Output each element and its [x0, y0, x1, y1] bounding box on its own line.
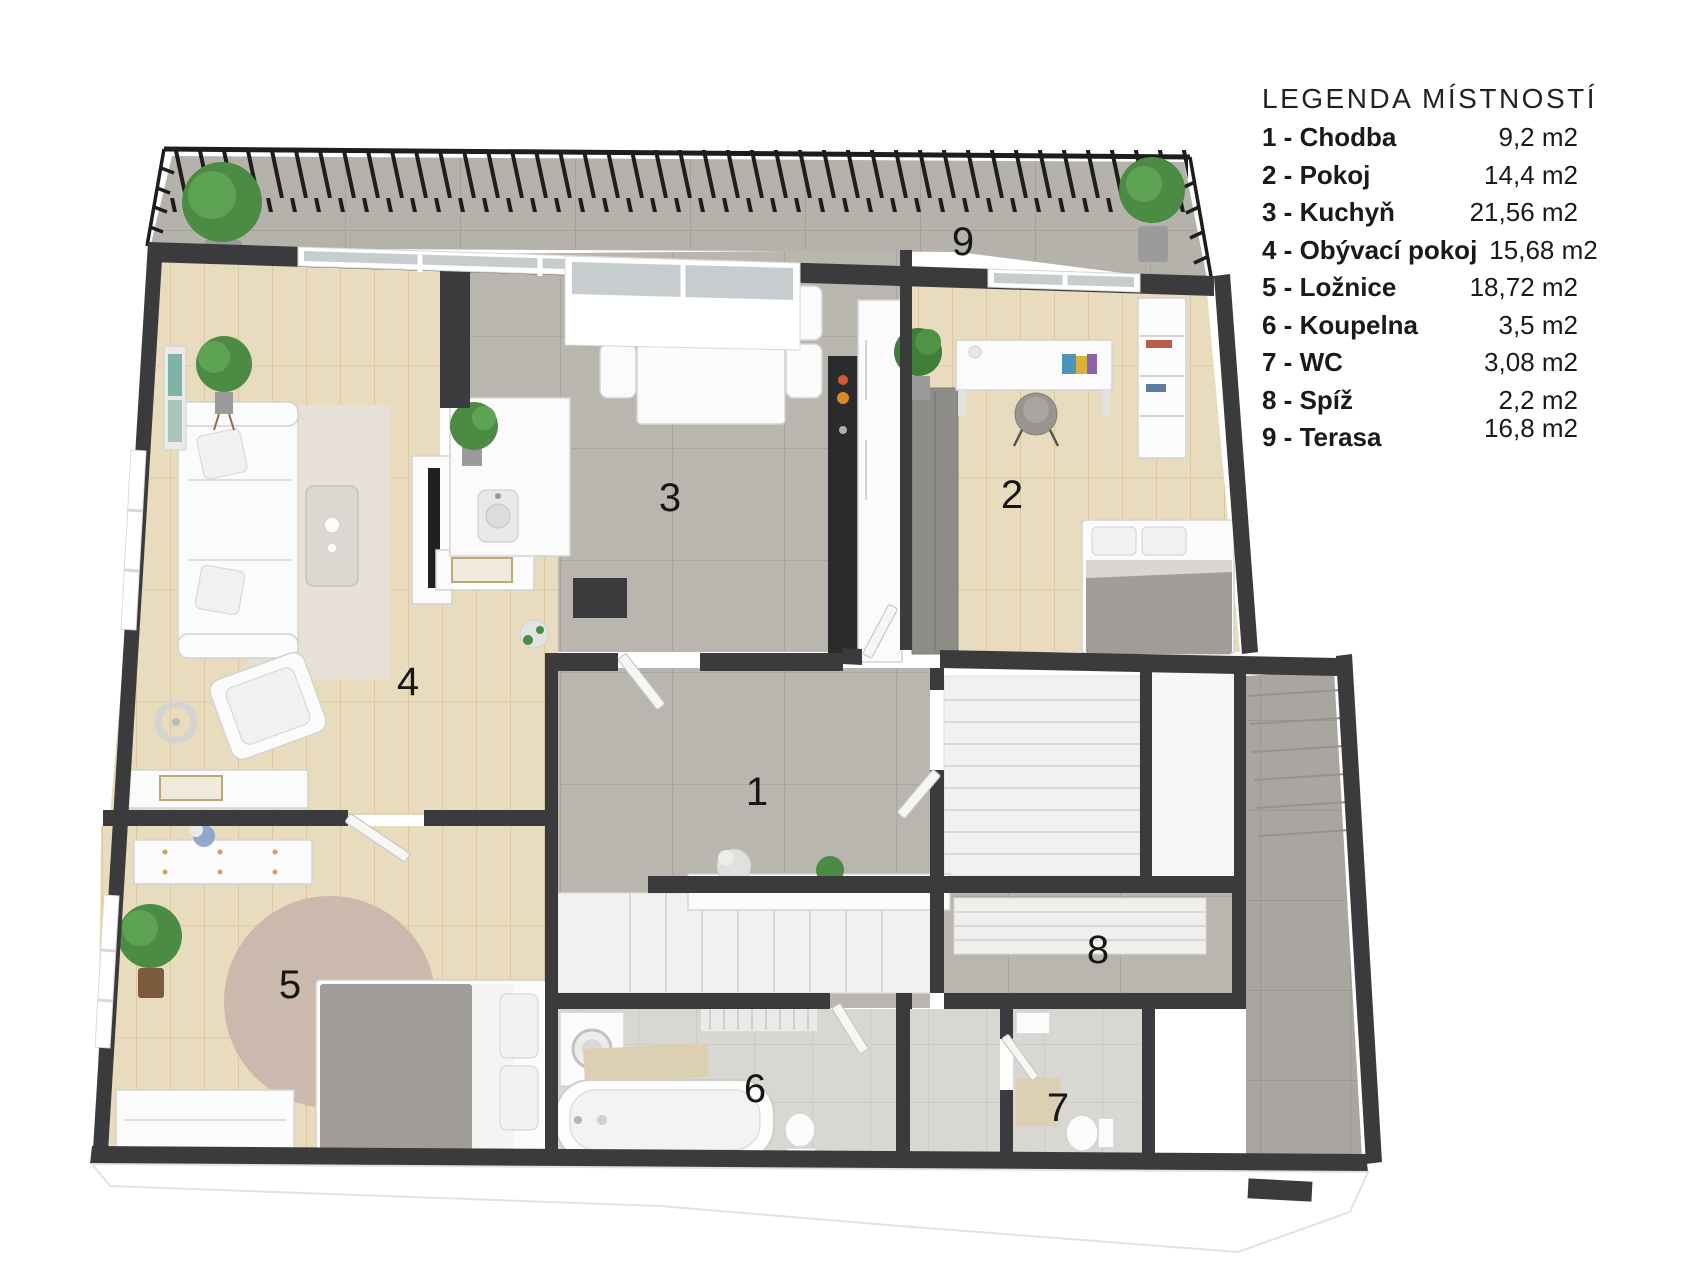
room-label-koupelna: 6 — [744, 1067, 766, 1111]
wall-stairs-top — [648, 876, 930, 893]
legend-row-obyvaci-pokoj: 4 - Obývací pokoj 15,68 m2 — [1262, 232, 1578, 270]
desk-lamp — [969, 346, 981, 358]
floor-slab — [92, 1164, 1368, 1252]
window-kitchen-bay — [565, 256, 800, 350]
legend-row-terasa: 9 - Terasa 16,8 m2 — [1262, 419, 1578, 457]
wall-pantry-right — [1232, 876, 1246, 1009]
legend-room-label: 1 - Chodba — [1262, 119, 1396, 157]
room-label-pokoj: 2 — [1001, 473, 1023, 517]
wc-sink — [1016, 1012, 1050, 1034]
legend-rows: 1 - Chodba 9,2 m2 2 - Pokoj 14,4 m2 3 - … — [1262, 119, 1578, 457]
pantry-shelves — [954, 898, 1206, 954]
floor-plan-page: 1 2 3 4 5 6 7 8 9 LEGENDA MÍSTNOSTÍ 1 - … — [0, 0, 1707, 1280]
legend-room-label: 6 - Koupelna — [1262, 307, 1418, 345]
coffee-table — [306, 486, 358, 586]
room-label-loznice: 5 — [279, 963, 301, 1007]
wall-bedroom-top-b — [424, 810, 555, 826]
pillow — [500, 1066, 538, 1130]
wall-bath-right — [896, 1009, 910, 1161]
wall-bedroom-top-a — [103, 810, 348, 826]
wing-closet-floor — [1152, 668, 1234, 876]
legend-room-area: 18,72 m2 — [1458, 269, 1578, 307]
legend-row-loznice: 5 - Ložnice 18,72 m2 — [1262, 269, 1578, 307]
legend-room-label: 9 - Terasa — [1262, 419, 1381, 457]
pillow — [1092, 527, 1136, 555]
bath-mat — [583, 1043, 709, 1083]
slab-step-detail — [1248, 1178, 1313, 1201]
wall-kitchen-room2 — [900, 250, 912, 650]
wall-wing-closet-right — [1234, 668, 1246, 876]
bench — [116, 1090, 294, 1150]
legend-row-pokoj: 2 - Pokoj 14,4 m2 — [1262, 157, 1578, 195]
wall-hall-top-a — [553, 653, 618, 671]
wall-bath-top-a — [558, 993, 830, 1009]
legend-room-area: 9,2 m2 — [1487, 119, 1579, 157]
sofa — [178, 402, 298, 658]
legend-room-area: 3,08 m2 — [1472, 344, 1578, 382]
picture-frame — [160, 776, 222, 800]
wall-hall-top-b — [700, 653, 843, 671]
legend-room-area: 16,8 m2 — [1472, 410, 1578, 448]
room-label-terasa: 9 — [952, 220, 974, 264]
legend-row-koupelna: 6 - Koupelna 3,5 m2 — [1262, 307, 1578, 345]
kitchen-sink — [486, 504, 510, 528]
console-table — [122, 770, 308, 808]
wall-pantry-bottom-a — [944, 993, 1000, 1009]
legend-room-label: 2 - Pokoj — [1262, 157, 1370, 195]
desk-books — [1062, 354, 1076, 374]
bedroom-bed — [316, 980, 546, 1161]
legend-room-area: 15,68 m2 — [1477, 232, 1597, 270]
wall-art — [164, 346, 186, 450]
legend-room-label: 4 - Obývací pokoj — [1262, 232, 1477, 270]
radiator — [700, 1006, 818, 1032]
pillow — [500, 994, 538, 1058]
room-label-chodba: 1 — [746, 770, 768, 814]
legend-room-label: 8 - Spíž — [1262, 382, 1353, 420]
legend-room-label: 7 - WC — [1262, 344, 1343, 382]
picture-frame — [452, 558, 512, 582]
bookshelf — [1138, 298, 1186, 458]
wall-pantry-top — [944, 876, 1232, 893]
room-label-obyvaci-pokoj: 4 — [397, 660, 419, 704]
legend-room-area: 3,5 m2 — [1487, 307, 1579, 345]
wall-pantry-bottom-b — [1155, 993, 1232, 1009]
room-label-kuchyn: 3 — [659, 476, 681, 520]
wall-wc-top — [1000, 993, 1155, 1009]
wall-wc-left-b — [1000, 1090, 1013, 1161]
legend-room-area: 14,4 m2 — [1472, 157, 1578, 195]
legend-room-area: 21,56 m2 — [1458, 194, 1578, 232]
kitchen-tall-unit-black — [828, 356, 858, 662]
wc-toilet — [1066, 1115, 1114, 1151]
room2-bed — [1082, 520, 1234, 654]
legend-title: LEGENDA MÍSTNOSTÍ — [1262, 85, 1578, 113]
wall-kitchen-living — [440, 258, 470, 408]
terrace-railing-balusters — [168, 150, 1188, 212]
legend-row-wc: 7 - WC 3,08 m2 — [1262, 344, 1578, 382]
room-label-wc: 7 — [1047, 1086, 1069, 1130]
legend-row-kuchyn: 3 - Kuchyň 21,56 m2 — [1262, 194, 1578, 232]
wall-wing-stairs-right — [1140, 668, 1152, 876]
wall-hall-right-a — [930, 668, 944, 690]
legend-row-chodba: 1 - Chodba 9,2 m2 — [1262, 119, 1578, 157]
wall-hall-left — [545, 653, 558, 1153]
wall-pillar — [573, 578, 627, 618]
wall-hall-right-b — [930, 770, 944, 993]
fruit-bowl — [837, 392, 849, 404]
room-label-spiz: 8 — [1087, 928, 1109, 972]
staircase-wing — [944, 676, 1140, 876]
legend: LEGENDA MÍSTNOSTÍ 1 - Chodba 9,2 m2 2 - … — [1262, 85, 1578, 457]
plant-pot — [1138, 226, 1168, 262]
small-white-plant — [520, 620, 548, 648]
wall-wc-right — [1142, 1009, 1155, 1161]
pillow — [1142, 527, 1186, 555]
corridor-niche-floor — [910, 1009, 1000, 1161]
legend-room-label: 3 - Kuchyň — [1262, 194, 1395, 232]
bathtub — [556, 1080, 774, 1160]
wardrobe — [912, 388, 958, 654]
wall-room2-bottom-left — [843, 648, 862, 665]
legend-room-label: 5 - Ložnice — [1262, 269, 1396, 307]
wall-bath-top-b — [896, 993, 912, 1009]
